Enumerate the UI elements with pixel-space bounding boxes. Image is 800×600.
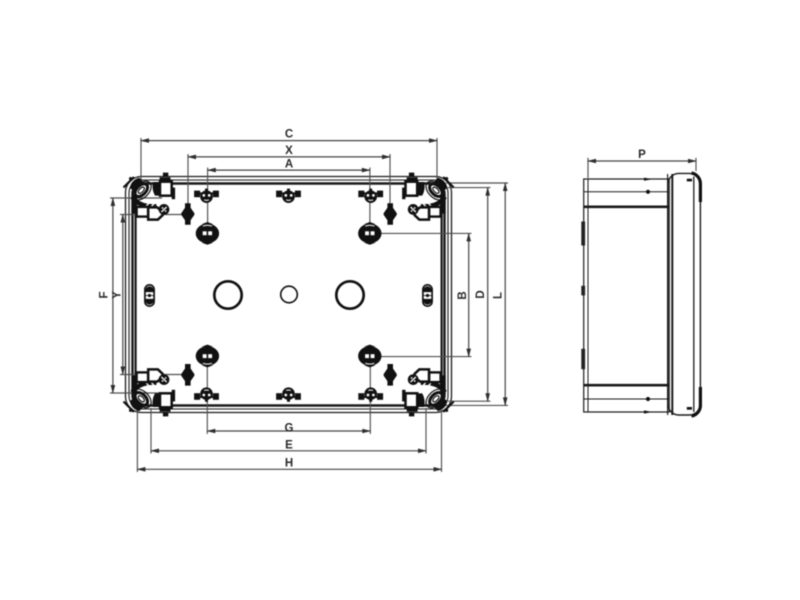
svg-text:H: H <box>285 458 293 470</box>
svg-text:G: G <box>285 423 294 435</box>
svg-text:P: P <box>638 149 646 161</box>
svg-text:F: F <box>99 291 111 298</box>
svg-text:A: A <box>285 158 293 170</box>
svg-text:C: C <box>285 129 293 141</box>
svg-text:Y: Y <box>112 291 124 299</box>
svg-text:B: B <box>457 291 469 299</box>
svg-text:E: E <box>285 440 293 452</box>
svg-text:X: X <box>285 145 293 157</box>
svg-text:D: D <box>475 290 487 298</box>
svg-text:L: L <box>493 292 505 299</box>
